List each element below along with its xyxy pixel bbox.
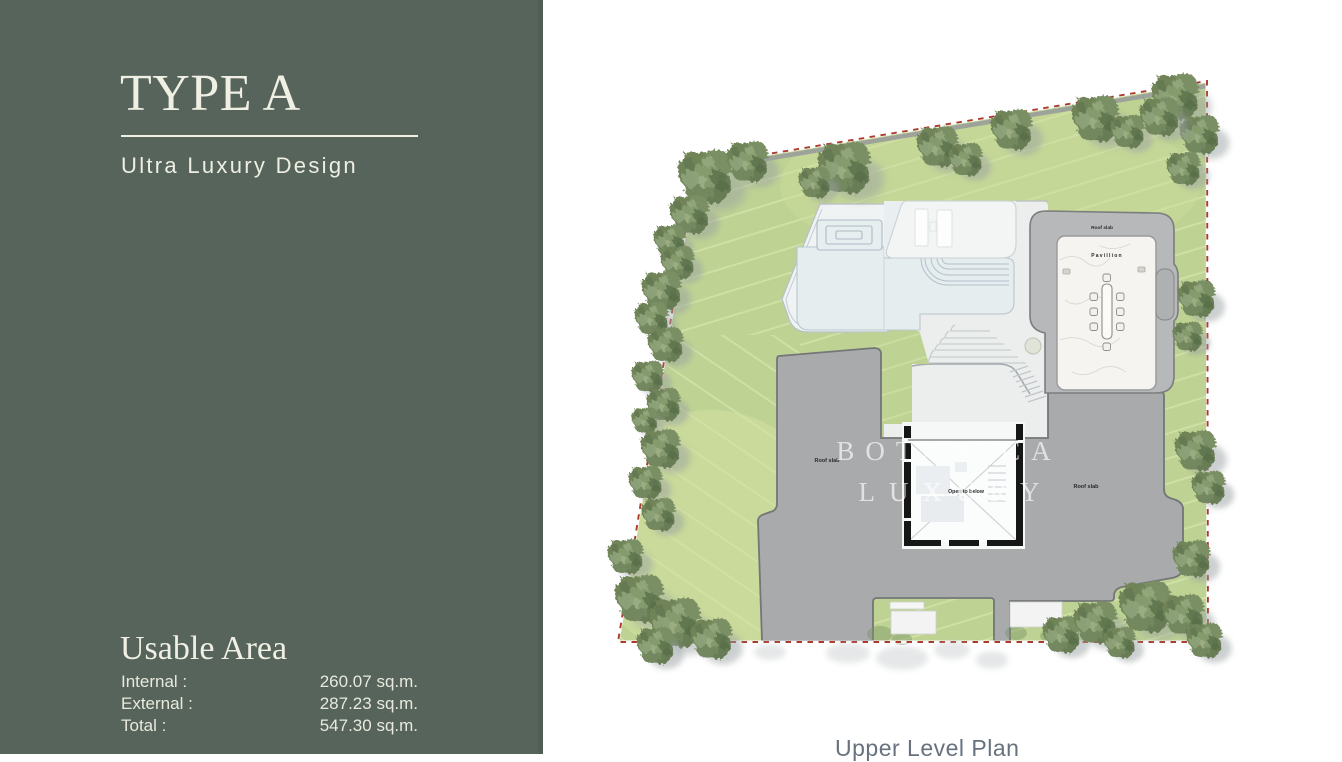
svg-text:Roof slab: Roof slab — [1073, 484, 1099, 490]
svg-text:LUXURY: LUXURY — [858, 477, 1053, 507]
svg-text:Roof slab: Roof slab — [1091, 225, 1113, 231]
svg-text:Pavillion: Pavillion — [1091, 253, 1123, 259]
svg-text:BOTANICA: BOTANICA — [836, 436, 1061, 466]
